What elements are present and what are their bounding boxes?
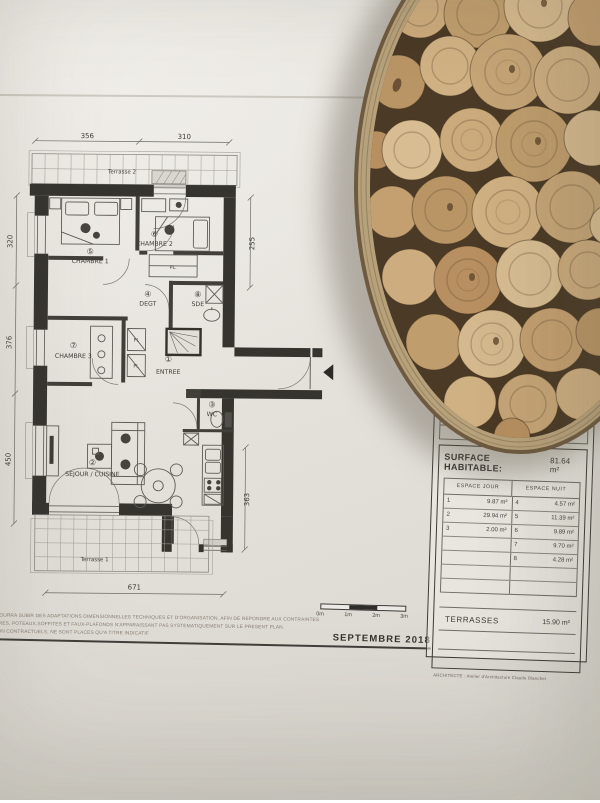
photo-of-floor-plan: Terrasse 2: [0, 0, 600, 800]
dim-356: 356: [81, 132, 95, 140]
plan-document: Terrasse 2: [0, 0, 600, 803]
room-num-wc: ③: [208, 400, 215, 409]
sink-icon-sde: [204, 307, 220, 321]
scale-bar: 0m 1m 2m 3m: [320, 603, 406, 622]
room-label-degt: DEGT: [139, 301, 156, 308]
terrasses-value: 15.90 m²: [542, 618, 570, 626]
empty-row: [437, 650, 575, 673]
dim-310: 310: [178, 133, 191, 141]
dim-363: 363: [243, 493, 251, 506]
terrasses-label: TERRASSES: [445, 614, 499, 625]
closet-label-pl: PL.: [170, 265, 177, 271]
scale-0m: 0m: [312, 611, 328, 617]
surface-table: SURFACE HABITABLE: 81.64 m² ESPACE JOUR …: [431, 444, 587, 673]
dim-255: 255: [248, 237, 256, 250]
col-espace-nuit: ESPACE NUIT: [511, 481, 579, 498]
closet-label-pl2: Pl.: [134, 338, 140, 344]
rooms-area-table: ESPACE JOUR ESPACE NUIT 1 9.87 m² 4 4.57…: [440, 478, 581, 597]
room-num-degt: ④: [144, 290, 151, 299]
bed-icon-chambre1: [49, 198, 131, 245]
shower-icon: [166, 329, 200, 355]
room-label-chambre3: CHAMBRE 3: [55, 353, 92, 360]
room-num-sejour: ②: [89, 458, 96, 467]
dim-671: 671: [128, 584, 141, 592]
room-label-sejour: SEJOUR / CUISINE: [65, 471, 119, 478]
title-block-table: EMENT C R+1 3108 SURFACE HABITABLE: 81.6…: [426, 408, 595, 662]
terrace-1: Terrasse 1: [30, 515, 212, 575]
duct-hatch: [184, 433, 199, 445]
dim-376: 376: [5, 335, 13, 349]
dim-450: 450: [4, 453, 12, 466]
col-espace-jour: ESPACE JOUR: [444, 479, 511, 496]
unit-info-table: EMENT C R+1 3108: [439, 413, 589, 444]
scale-bar-segments: [320, 603, 406, 611]
room-num-chambre3: ⑦: [70, 341, 77, 350]
room-num-sde: ⑧: [194, 290, 201, 299]
dim-320: 320: [6, 235, 14, 248]
kitchen-counter-icon: [202, 445, 224, 505]
scale-1m: 1m: [340, 612, 356, 618]
scale-3m: 3m: [396, 613, 412, 619]
washer-icon: [206, 285, 223, 303]
room-num-chambre1: ⑤: [87, 247, 94, 256]
terrace-door-icon: [151, 171, 186, 229]
closet-label-pl3: Pl.: [133, 364, 139, 370]
room-label-wc: WC: [207, 411, 218, 418]
surface-title: SURFACE HABITABLE:: [444, 452, 550, 475]
window-icons: [25, 213, 45, 479]
room-label-chambre1: CHAMBRE 1: [72, 258, 109, 265]
floor-plan: Terrasse 2: [0, 0, 600, 803]
room-label-chambre2: CHAMBRE 2: [136, 241, 173, 248]
room-num-entree: ①: [165, 355, 172, 364]
room-label-entree: ENTREE: [156, 369, 181, 376]
dining-table-icon: [134, 464, 182, 508]
wardrobe-icon-chambre3: [90, 326, 112, 378]
surface-value: 81.64 m²: [550, 456, 582, 475]
terrace-2: Terrasse 2: [29, 151, 240, 188]
room-num-chambre2: ⑥: [151, 230, 158, 239]
floor-value: R+1: [496, 426, 541, 442]
terrace-1-label: Terrasse 1: [80, 557, 109, 563]
building-value: C: [439, 424, 496, 441]
sejour-french-door-icon: [49, 506, 119, 513]
terrace-2-label: Terrasse 2: [107, 169, 136, 175]
entrance-arrow-icon: [323, 364, 333, 380]
room-label-sde: SDE: [191, 301, 204, 308]
tv-unit-icon: [46, 426, 58, 476]
disclaimer-text: ET POURRA SUBIR DES ADAPTATIONS DIMENSIO…: [0, 612, 319, 641]
scale-2m: 2m: [368, 613, 384, 619]
lot-number: 3108: [540, 428, 588, 445]
